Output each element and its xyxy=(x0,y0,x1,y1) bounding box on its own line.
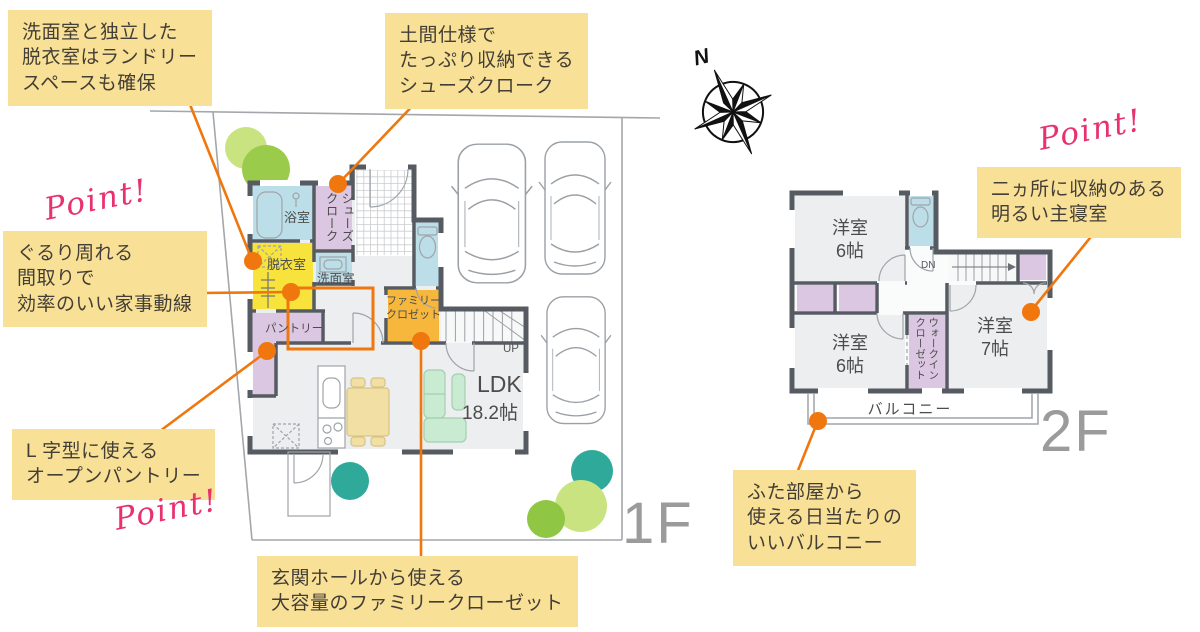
room-pantry: パントリー xyxy=(265,320,323,336)
callout-shoe-cloak: 土間仕様で たっぷり収納できる シューズクローク xyxy=(385,13,588,109)
tree xyxy=(331,462,369,500)
callout-family-closet: 玄関ホールから使える 大容量のファミリークローゼット xyxy=(257,556,578,627)
stairs-up-label: UP xyxy=(503,343,519,355)
dining-set xyxy=(347,378,389,446)
car-1 xyxy=(452,144,533,283)
tree xyxy=(527,500,565,538)
marker-dot-family-closet xyxy=(412,332,430,350)
callout-balcony: ふた部屋から 使える日当たりの いいバルコニー xyxy=(733,470,916,566)
room-wic: ウォークイン クローゼット xyxy=(913,317,939,389)
room-ldk: LDK xyxy=(477,371,522,398)
room-ldk-size: 18.2帖 xyxy=(462,398,518,425)
marker-dot-pantry xyxy=(258,342,276,360)
room-bedroom-south: 洋室 6帖 xyxy=(820,332,880,377)
marker-dot-balcony xyxy=(809,412,827,430)
marker-dot-shoe-cloak xyxy=(329,175,347,193)
room-dressing: 脱衣室 xyxy=(267,254,306,273)
marker-dot-laundry xyxy=(244,252,262,270)
stairs-dn-label: DN xyxy=(921,260,935,271)
car-3 xyxy=(541,297,611,424)
room-bedroom-main: 洋室 7帖 xyxy=(965,315,1025,360)
room-family-closet: ファミリー クロゼット xyxy=(386,295,441,323)
callout-laundry: 洗面室と独立した 脱衣室はランドリー スペースも確保 xyxy=(8,10,212,106)
car-2 xyxy=(539,142,611,274)
room-washroom: 洗面室 xyxy=(317,268,355,287)
room-bath: 浴室 xyxy=(284,207,310,226)
marker-dot-circulation xyxy=(282,283,300,301)
callout-bedroom: 二ヵ所に収納のある 明るい主寝室 xyxy=(977,167,1181,238)
floor-label-2f: 2F xyxy=(1040,398,1112,465)
floorplan-infographic: 洗面室と独立した 脱衣室はランドリー スペースも確保 土間仕様で たっぷり収納で… xyxy=(0,0,1200,632)
compass-rose xyxy=(676,53,790,171)
sofa xyxy=(424,370,466,442)
room-bedroom-north: 洋室 6帖 xyxy=(820,217,880,262)
floor-label-1f: 1F xyxy=(622,490,694,557)
room-shoe-cloak: シューズ クローク xyxy=(322,192,353,256)
room-balcony: バルコニー xyxy=(855,398,965,419)
callout-circulation: ぐるり周れる 間取りで 効率のいい家事動線 xyxy=(3,231,207,327)
